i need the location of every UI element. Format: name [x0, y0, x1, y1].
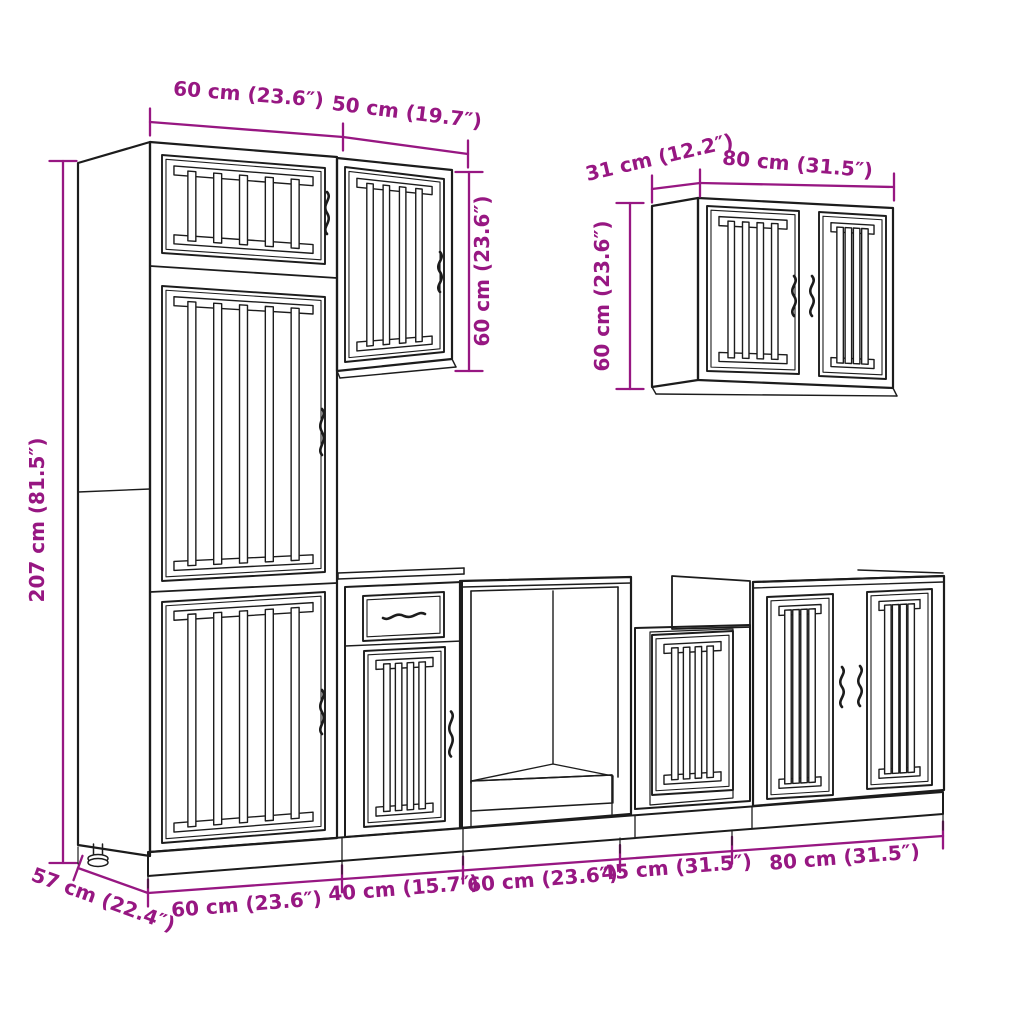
dim-label-total-height: 207 cm (81.5″) — [25, 438, 49, 603]
base-80-cabinet — [753, 570, 944, 806]
tall-cabinet — [78, 142, 337, 867]
dim-label-upper50-height: 60 cm (23.6″) — [470, 195, 494, 346]
dim-label-tall-cabinet-width: 60 cm (23.6″) — [172, 76, 324, 112]
diagram-page: 60 cm (23.6″) 50 cm (19.7″) 60 cm (23.6″… — [0, 0, 1024, 1024]
kitchen-cabinet-dimension-diagram: 60 cm (23.6″) 50 cm (19.7″) 60 cm (23.6″… — [0, 0, 1024, 1024]
wall-80-cabinet — [652, 198, 897, 396]
dim-label-wall-cabinet-width: 80 cm (31.5″) — [721, 145, 874, 182]
dim-label-base-width-3: 60 cm (23.6″) — [466, 861, 618, 897]
oven-60-cabinet — [460, 577, 631, 828]
wall-50-cabinet — [337, 158, 456, 378]
dim-label-base-width-2: 40 cm (15.7″) — [327, 870, 479, 906]
base-40-cabinet — [338, 568, 464, 837]
dim-label-upper50-width: 50 cm (19.7″) — [330, 91, 483, 133]
line-art — [50, 109, 945, 907]
dim-label-base-width-5: 80 cm (31.5″) — [768, 839, 920, 875]
dimension-labels: 60 cm (23.6″) 50 cm (19.7″) 60 cm (23.6″… — [25, 76, 921, 936]
dim-label-base-depth: 57 cm (22.4″) — [28, 862, 178, 936]
dim-label-wall-cabinet-depth: 31 cm (12.2″) — [583, 129, 736, 186]
dim-label-wall-cabinet-height: 60 cm (23.6″) — [590, 220, 614, 371]
base-45-cabinet — [635, 576, 750, 809]
dim-label-base-width-1: 60 cm (23.6″) — [170, 886, 322, 922]
dim-label-base-width-4: 45 cm (31.5″) — [600, 849, 752, 885]
